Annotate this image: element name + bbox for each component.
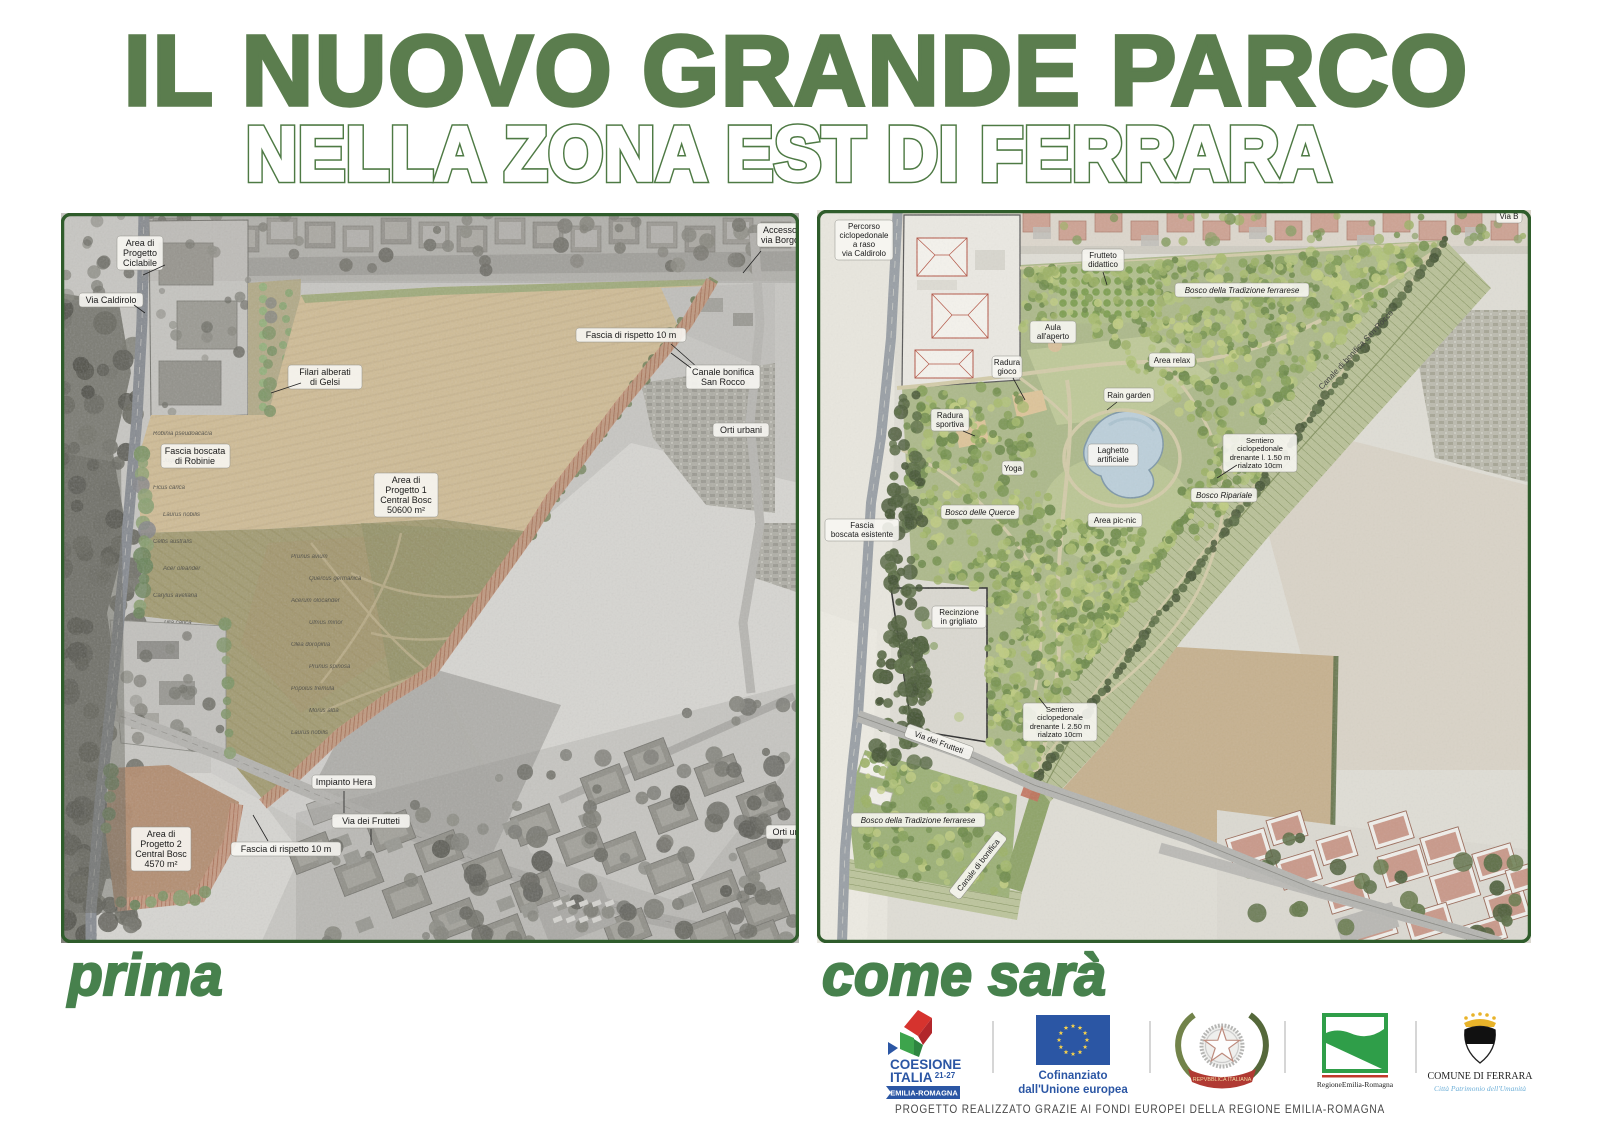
svg-text:Ciclabile: Ciclabile xyxy=(123,258,157,268)
svg-text:ciclopedonale: ciclopedonale xyxy=(1237,444,1283,453)
svg-text:Bosco della Tradizione ferrare: Bosco della Tradizione ferrarese xyxy=(1185,286,1300,295)
svg-text:Recinzione: Recinzione xyxy=(939,608,979,617)
svg-text:Central Bosc: Central Bosc xyxy=(380,495,432,505)
svg-text:via Caldirolo: via Caldirolo xyxy=(842,249,887,258)
svg-text:Area pic-nic: Area pic-nic xyxy=(1094,516,1136,525)
svg-text:Laurus nobilis: Laurus nobilis xyxy=(163,512,200,518)
svg-text:di Gelsi: di Gelsi xyxy=(310,377,340,387)
svg-text:Bosco della Tradizione ferrare: Bosco della Tradizione ferrarese xyxy=(861,816,976,825)
svg-text:Canale bonifica: Canale bonifica xyxy=(692,367,754,377)
svg-text:a raso: a raso xyxy=(853,240,876,249)
svg-text:Prunus avium: Prunus avium xyxy=(291,554,328,560)
svg-text:Celtis australis: Celtis australis xyxy=(153,539,192,545)
svg-text:Progetto 1: Progetto 1 xyxy=(385,485,427,495)
svg-text:Acer oleander: Acer oleander xyxy=(162,566,201,572)
svg-text:4570 m²: 4570 m² xyxy=(144,859,177,869)
svg-text:Carylus avellana: Carylus avellana xyxy=(153,593,198,599)
svg-text:Ficus carica: Ficus carica xyxy=(153,485,186,491)
svg-text:Bosco Ripariale: Bosco Ripariale xyxy=(1196,491,1253,500)
svg-text:COMUNE DI FERRARA: COMUNE DI FERRARA xyxy=(1427,1071,1533,1082)
svg-text:Fascia: Fascia xyxy=(850,521,874,530)
svg-text:Fascia boscata: Fascia boscata xyxy=(165,446,226,456)
svg-text:dall'Unione europea: dall'Unione europea xyxy=(1018,1084,1128,1096)
svg-text:Fascia di rispetto 10 m: Fascia di rispetto 10 m xyxy=(241,844,332,854)
svg-text:Acerum olocander: Acerum olocander xyxy=(290,598,341,604)
svg-text:Accesso: Accesso xyxy=(763,225,797,235)
svg-text:Orti ur: Orti ur xyxy=(772,827,797,837)
svg-text:Yoga: Yoga xyxy=(1004,464,1023,473)
svg-text:rialzato 10cm: rialzato 10cm xyxy=(1038,730,1083,739)
svg-text:EMILIA-ROMAGNA: EMILIA-ROMAGNA xyxy=(890,1089,958,1098)
svg-text:Quercus germanica: Quercus germanica xyxy=(309,576,362,582)
svg-text:all'aperto: all'aperto xyxy=(1037,332,1070,341)
svg-text:Radura: Radura xyxy=(937,411,964,420)
svg-text:Frutteto: Frutteto xyxy=(1089,251,1117,260)
svg-text:Morus alba: Morus alba xyxy=(309,708,339,714)
svg-text:RegioneEmilia-Romagna: RegioneEmilia-Romagna xyxy=(1317,1080,1394,1089)
svg-text:ITALIA 21-27: ITALIA 21-27 xyxy=(890,1070,956,1085)
svg-text:Via B: Via B xyxy=(1500,212,1519,221)
svg-text:Percorso: Percorso xyxy=(848,222,881,231)
svg-text:Olea doropinia: Olea doropinia xyxy=(291,642,331,648)
svg-text:Città Patrimonio dell'Umanità: Città Patrimonio dell'Umanità xyxy=(1434,1084,1526,1093)
svg-text:Laghetto: Laghetto xyxy=(1097,446,1129,455)
svg-text:Via dei Frutteti: Via dei Frutteti xyxy=(342,816,400,826)
svg-text:REPVBBLICA ITALIANA: REPVBBLICA ITALIANA xyxy=(1193,1077,1252,1083)
svg-text:didattico: didattico xyxy=(1088,260,1118,269)
svg-text:Bosco delle Querce: Bosco delle Querce xyxy=(945,508,1015,517)
svg-text:Radura: Radura xyxy=(994,358,1021,367)
svg-text:Aula: Aula xyxy=(1045,323,1062,332)
svg-text:Ulmus minor: Ulmus minor xyxy=(309,620,344,626)
svg-text:Popolus tremula: Popolus tremula xyxy=(291,686,335,692)
svg-text:Orti urbani: Orti urbani xyxy=(720,425,762,435)
svg-text:Area di: Area di xyxy=(392,475,421,485)
svg-text:sportiva: sportiva xyxy=(936,420,965,429)
svg-text:Area relax: Area relax xyxy=(1154,356,1190,365)
svg-text:Cofinanziato: Cofinanziato xyxy=(1039,1070,1108,1082)
svg-text:Central Bosc: Central Bosc xyxy=(135,849,187,859)
svg-text:San Rocco: San Rocco xyxy=(701,377,745,387)
svg-text:Impianto Hera: Impianto Hera xyxy=(316,777,373,787)
svg-text:via Borgo: via Borgo xyxy=(761,235,799,245)
svg-text:Progetto 2: Progetto 2 xyxy=(140,839,182,849)
svg-text:di Robinie: di Robinie xyxy=(175,456,215,466)
svg-text:Fascia di rispetto 10 m: Fascia di rispetto 10 m xyxy=(586,330,677,340)
svg-text:Prunus spinosa: Prunus spinosa xyxy=(309,664,351,670)
svg-text:Area di: Area di xyxy=(147,829,176,839)
svg-text:ciclopedonale: ciclopedonale xyxy=(1037,713,1083,722)
svg-text:Via Caldirolo: Via Caldirolo xyxy=(86,295,137,305)
svg-text:Area di: Area di xyxy=(126,238,155,248)
svg-text:50600 m²: 50600 m² xyxy=(387,505,425,515)
svg-text:Progetto: Progetto xyxy=(123,248,157,258)
svg-text:Rain garden: Rain garden xyxy=(1107,391,1151,400)
svg-text:gioco: gioco xyxy=(997,367,1017,376)
svg-text:in grigliato: in grigliato xyxy=(941,617,978,626)
svg-text:boscata esistente: boscata esistente xyxy=(831,530,894,539)
svg-text:rialzato 10cm: rialzato 10cm xyxy=(1238,461,1283,470)
svg-text:Laurus nobilis: Laurus nobilis xyxy=(291,730,328,736)
svg-text:Filari alberati: Filari alberati xyxy=(299,367,351,377)
svg-text:ciclopedonale: ciclopedonale xyxy=(840,231,889,240)
svg-text:Robinia pseudoacacia: Robinia pseudoacacia xyxy=(153,431,213,437)
svg-text:artificiale: artificiale xyxy=(1097,455,1129,464)
